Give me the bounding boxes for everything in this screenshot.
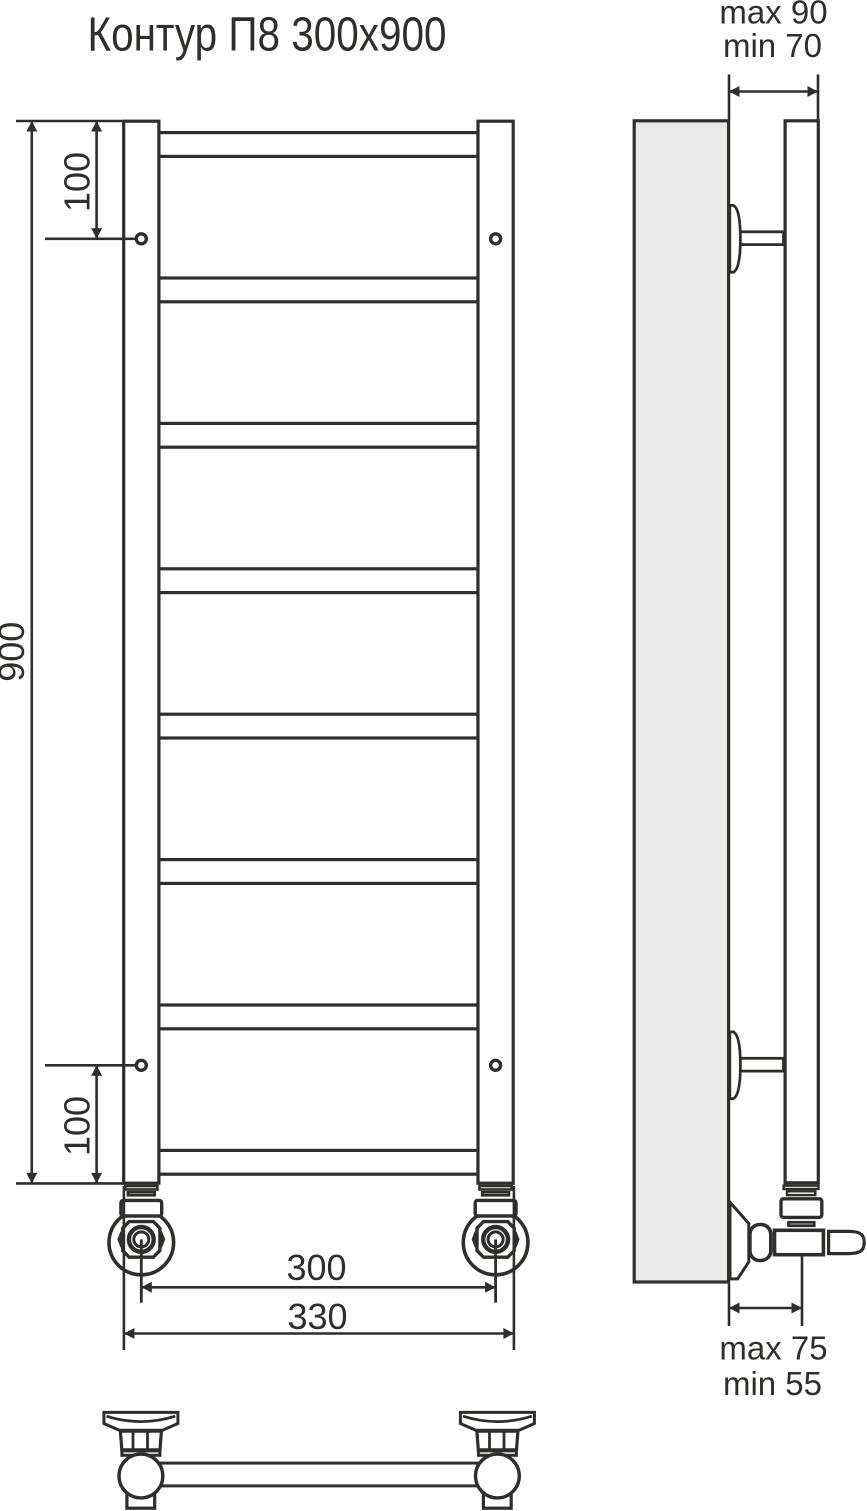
svg-text:min 55: min 55 [723, 1365, 822, 1402]
svg-text:100: 100 [56, 1096, 97, 1156]
svg-text:max 75: max 75 [719, 1330, 827, 1367]
svg-text:300: 300 [286, 1247, 346, 1288]
svg-text:min 70: min 70 [723, 27, 822, 64]
svg-text:Контур П8 300х900: Контур П8 300х900 [88, 9, 447, 62]
svg-text:900: 900 [0, 622, 32, 682]
svg-text:100: 100 [56, 152, 97, 212]
svg-text:330: 330 [287, 1296, 347, 1337]
